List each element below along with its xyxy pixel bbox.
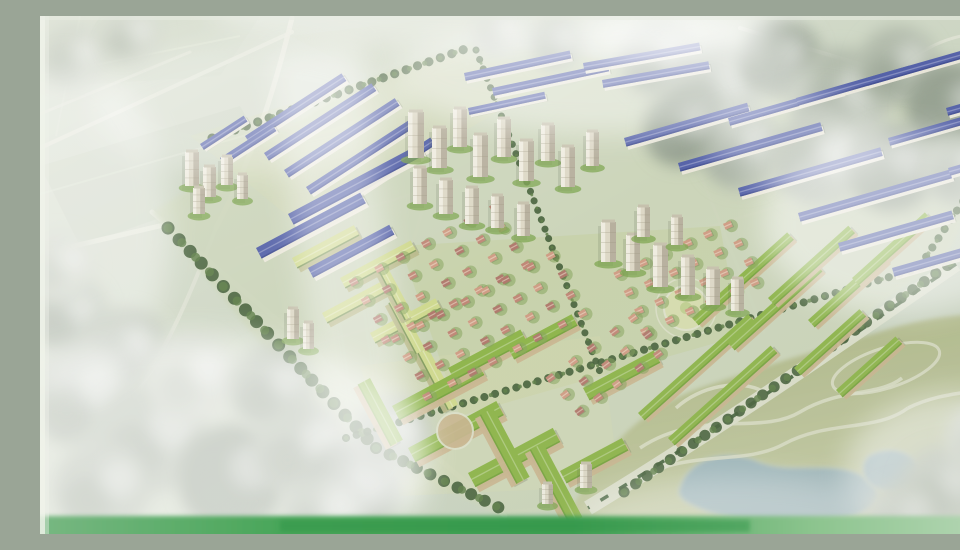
- bottom-band-core: [280, 520, 750, 532]
- glass-glare: [40, 16, 960, 534]
- masterplan-rendering-canvas: [40, 16, 960, 534]
- left-edge-strip: [40, 16, 45, 534]
- left-edge-fade: [45, 16, 49, 534]
- masterplan-photo: Aerial bird's-eye architectural renderin…: [40, 16, 960, 534]
- top-edge-line: [40, 16, 960, 20]
- photo-color-cast: [40, 16, 960, 534]
